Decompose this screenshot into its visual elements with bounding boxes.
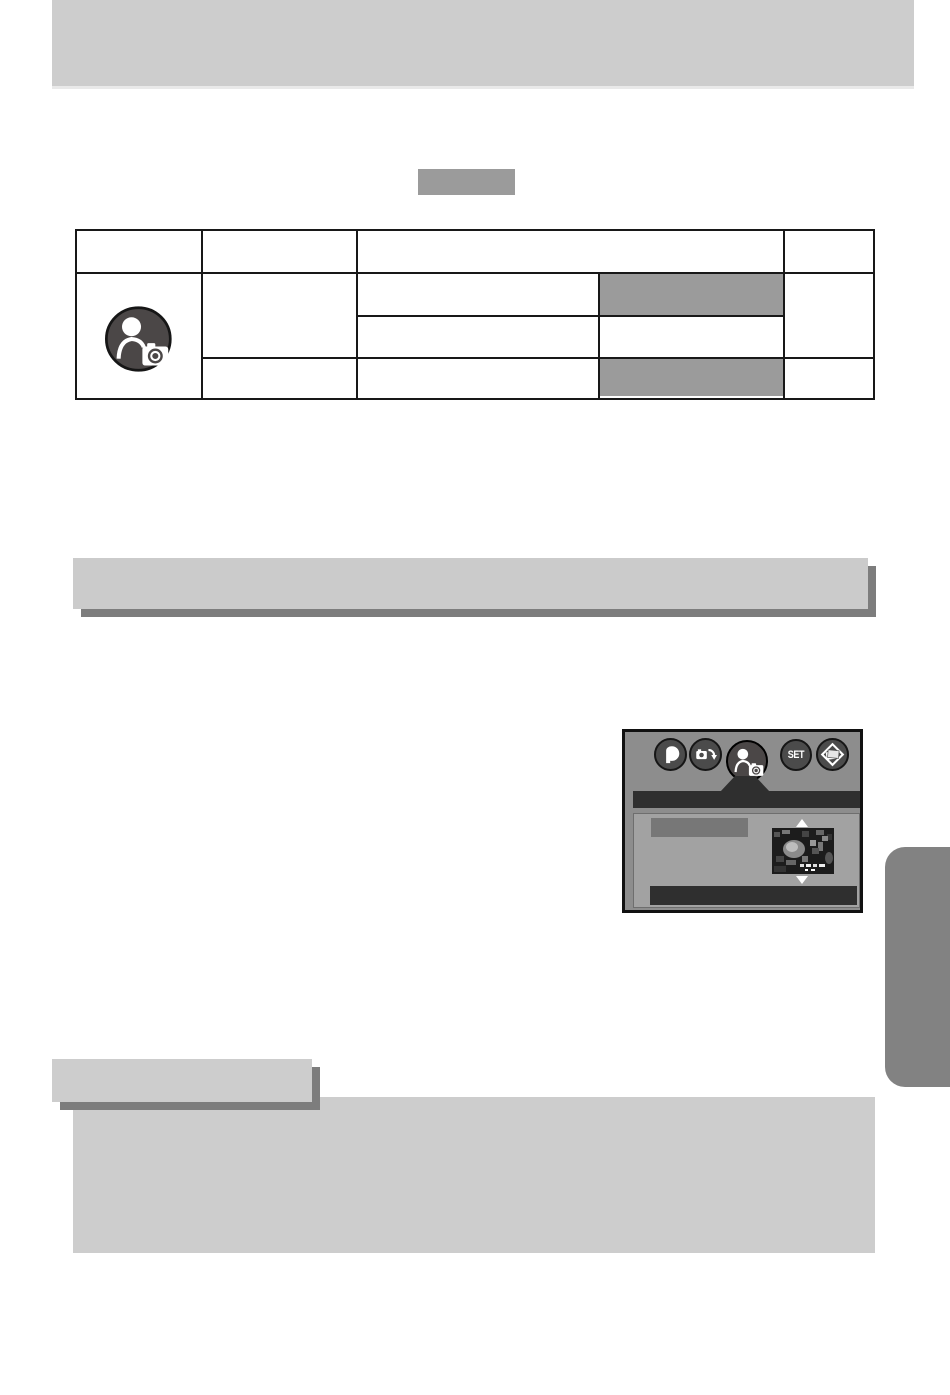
side-tab <box>885 847 950 1087</box>
selected-item-highlight <box>651 818 748 837</box>
menu-footer-bar <box>650 886 857 905</box>
mode-icon-glyph <box>658 742 684 768</box>
section-chip <box>418 169 515 195</box>
preview-thumbnail <box>772 828 834 874</box>
settings-table <box>75 229 875 400</box>
scroll-down-icon <box>796 876 808 884</box>
table-hline <box>358 315 783 317</box>
table-highlight-cell <box>600 274 783 315</box>
photo-stack-icon-glyph <box>819 741 846 768</box>
set-label: SET <box>788 749 804 761</box>
table-vline <box>201 231 203 398</box>
information-label <box>52 1059 312 1102</box>
information-box <box>73 1097 875 1253</box>
table-highlight-cell <box>600 359 783 396</box>
scene-icon-glyph <box>728 741 766 781</box>
menu-title-bar <box>633 791 860 808</box>
set-button-icon: SET <box>780 739 812 771</box>
camera-swap-icon-glyph <box>693 742 719 768</box>
table-vline <box>783 231 785 398</box>
camera-swap-icon <box>689 738 722 771</box>
mode-icon <box>654 738 687 771</box>
camera-menu-figure: SET <box>622 729 863 913</box>
header-bar <box>52 0 914 86</box>
scroll-up-icon <box>796 819 808 827</box>
preview-thumbnail-image <box>772 828 834 874</box>
menu-body <box>633 813 860 908</box>
scene-icon <box>726 740 768 782</box>
photo-stack-icon <box>816 738 849 771</box>
manual-page: SET <box>0 0 950 1395</box>
portrait-scene-icon <box>104 305 174 373</box>
divider-bar <box>73 558 868 609</box>
